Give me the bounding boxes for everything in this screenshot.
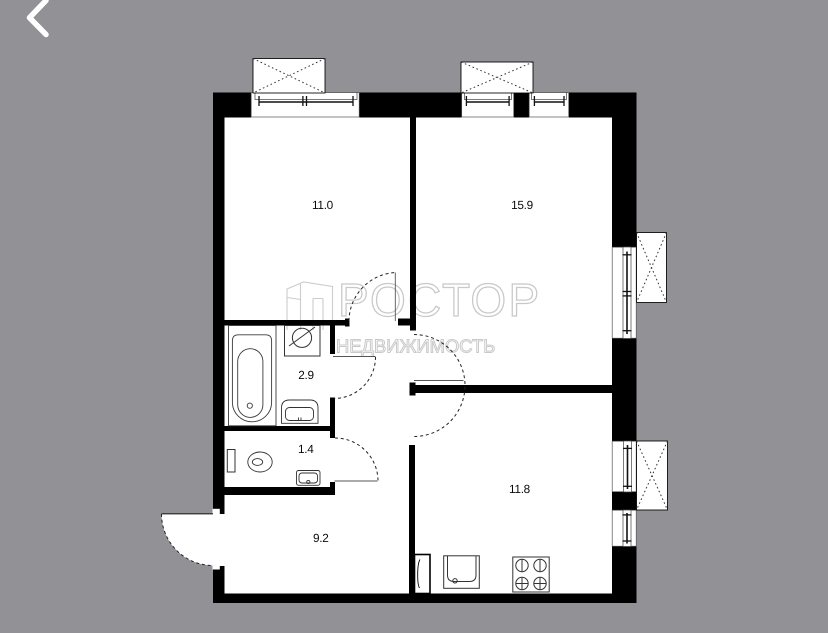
svg-text:РОСТОР: РОСТОР xyxy=(338,274,541,326)
svg-text:15.9: 15.9 xyxy=(511,198,533,212)
svg-text:НЕДВИЖИМОСТЬ: НЕДВИЖИМОСТЬ xyxy=(336,335,495,356)
svg-text:2.9: 2.9 xyxy=(298,368,314,382)
svg-text:11.8: 11.8 xyxy=(509,482,531,496)
svg-text:11.0: 11.0 xyxy=(312,198,334,212)
svg-text:1.4: 1.4 xyxy=(298,442,314,456)
svg-text:9.2: 9.2 xyxy=(313,531,329,545)
